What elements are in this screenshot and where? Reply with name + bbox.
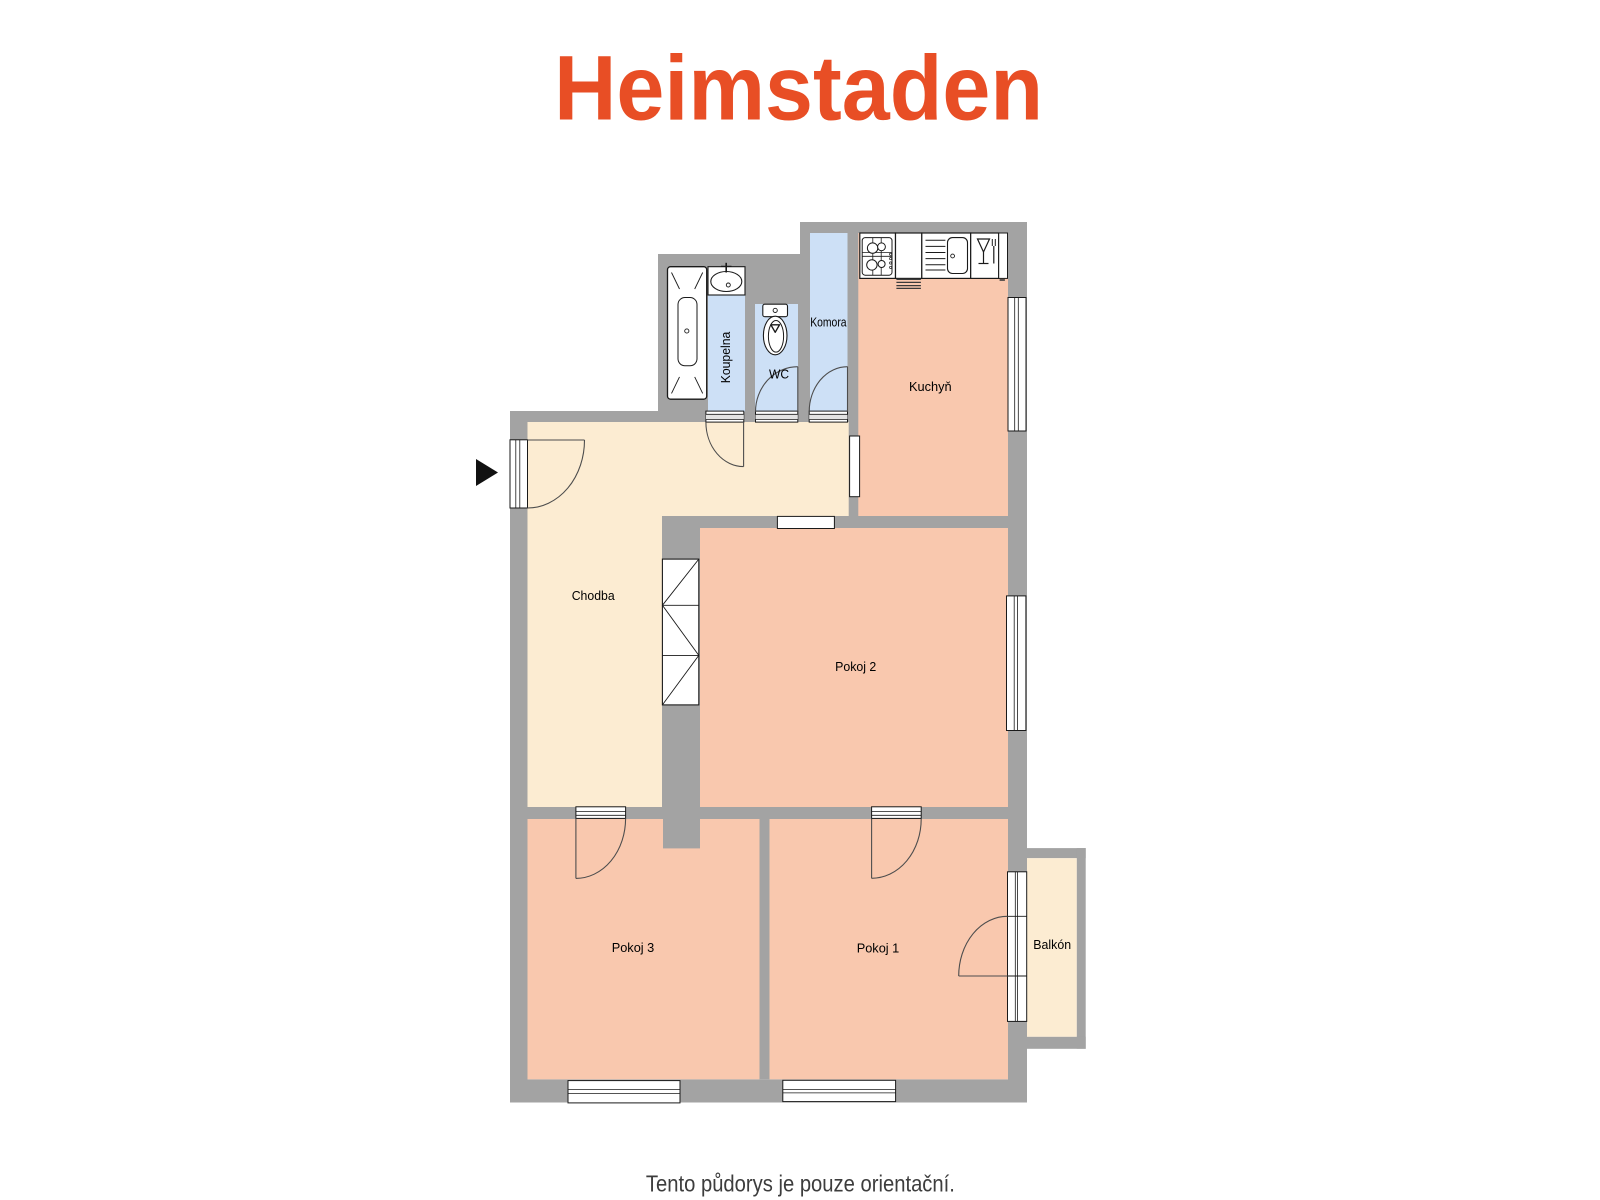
svg-text:Heimstaden: Heimstaden bbox=[554, 38, 1043, 140]
svg-text:Balkón: Balkón bbox=[1033, 937, 1071, 952]
svg-text:Pokoj 1: Pokoj 1 bbox=[857, 941, 900, 956]
svg-text:Kuchyň: Kuchyň bbox=[909, 379, 952, 394]
svg-text:Pokoj 2: Pokoj 2 bbox=[835, 659, 876, 674]
svg-text:Chodba: Chodba bbox=[572, 588, 616, 603]
svg-text:WC: WC bbox=[769, 367, 789, 382]
svg-text:Koupelna: Koupelna bbox=[718, 331, 733, 383]
svg-text:Tento půdorys je pouze orienta: Tento půdorys je pouze orientační. bbox=[646, 1170, 955, 1196]
svg-text:Pokoj 3: Pokoj 3 bbox=[612, 940, 655, 955]
svg-text:Komora: Komora bbox=[810, 315, 847, 330]
